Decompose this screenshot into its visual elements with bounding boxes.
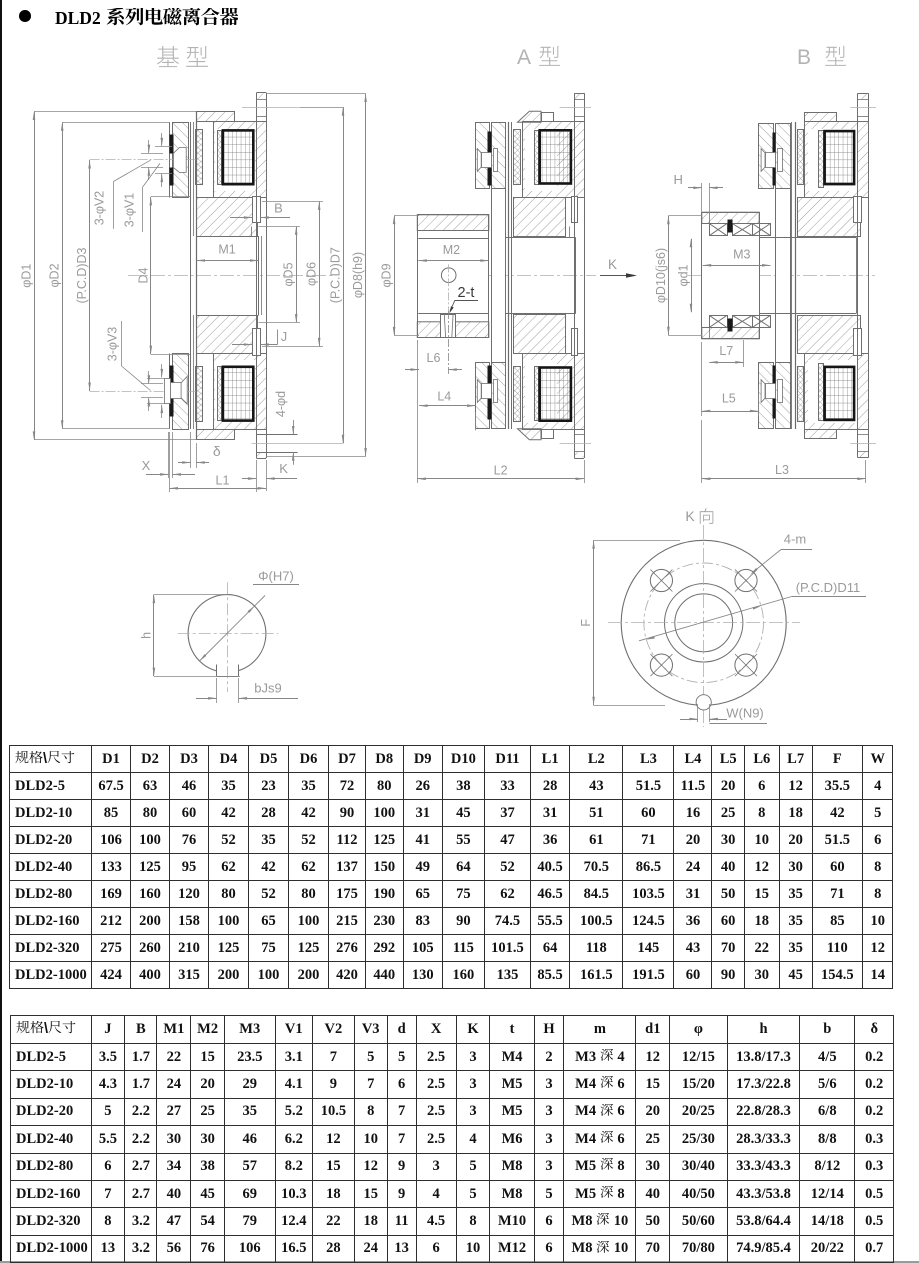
svg-text:3-φV3: 3-φV3 — [106, 327, 120, 362]
svg-text:L6: L6 — [427, 351, 441, 365]
svg-text:(P.C.D)D11: (P.C.D)D11 — [796, 580, 861, 595]
svg-text:L5: L5 — [722, 392, 736, 406]
svg-text:D4: D4 — [136, 267, 150, 283]
svg-text:L2: L2 — [494, 464, 508, 478]
svg-text:φD10(js6): φD10(js6) — [654, 248, 668, 303]
svg-text:(P.C.D)D7: (P.C.D)D7 — [329, 247, 343, 303]
svg-text:F: F — [579, 619, 593, 627]
svg-text:M1: M1 — [218, 243, 235, 257]
svg-text:K: K — [685, 508, 695, 524]
svg-text:4-m: 4-m — [784, 532, 806, 547]
svg-text:Φ(H7): Φ(H7) — [258, 569, 294, 584]
svg-text:bJs9: bJs9 — [254, 681, 281, 696]
svg-text:φD1: φD1 — [20, 264, 34, 288]
svg-text:4-φd: 4-φd — [274, 391, 288, 417]
svg-text:B: B — [797, 46, 811, 69]
svg-text:φd1: φd1 — [677, 264, 691, 286]
svg-text:L3: L3 — [775, 463, 789, 477]
svg-text:φD6: φD6 — [305, 262, 319, 286]
svg-text:h: h — [139, 632, 153, 639]
svg-text:φD8(h9): φD8(h9) — [351, 252, 365, 298]
svg-text:A: A — [517, 46, 531, 69]
svg-text:φD2: φD2 — [48, 263, 62, 287]
svg-text:2-t: 2-t — [458, 285, 475, 301]
svg-text:H: H — [674, 172, 683, 187]
svg-text:X: X — [142, 458, 151, 473]
svg-text:3-φV1: 3-φV1 — [123, 193, 137, 228]
svg-text:φD9: φD9 — [380, 263, 394, 287]
svg-text:M2: M2 — [443, 243, 460, 257]
svg-text:M3: M3 — [733, 248, 750, 262]
svg-text:K: K — [279, 461, 288, 476]
svg-text:(P.C.D)D3: (P.C.D)D3 — [75, 247, 89, 303]
svg-text:L7: L7 — [719, 344, 733, 358]
svg-text:W(N9): W(N9) — [726, 706, 764, 721]
svg-text:L1: L1 — [216, 474, 230, 488]
svg-text:3-φV2: 3-φV2 — [93, 191, 107, 226]
svg-text:φD5: φD5 — [282, 262, 296, 286]
svg-text:B: B — [274, 201, 283, 216]
svg-text:δ: δ — [213, 443, 221, 459]
svg-text:J: J — [281, 330, 287, 344]
svg-text:L4: L4 — [437, 390, 451, 404]
svg-text:K: K — [608, 257, 617, 272]
